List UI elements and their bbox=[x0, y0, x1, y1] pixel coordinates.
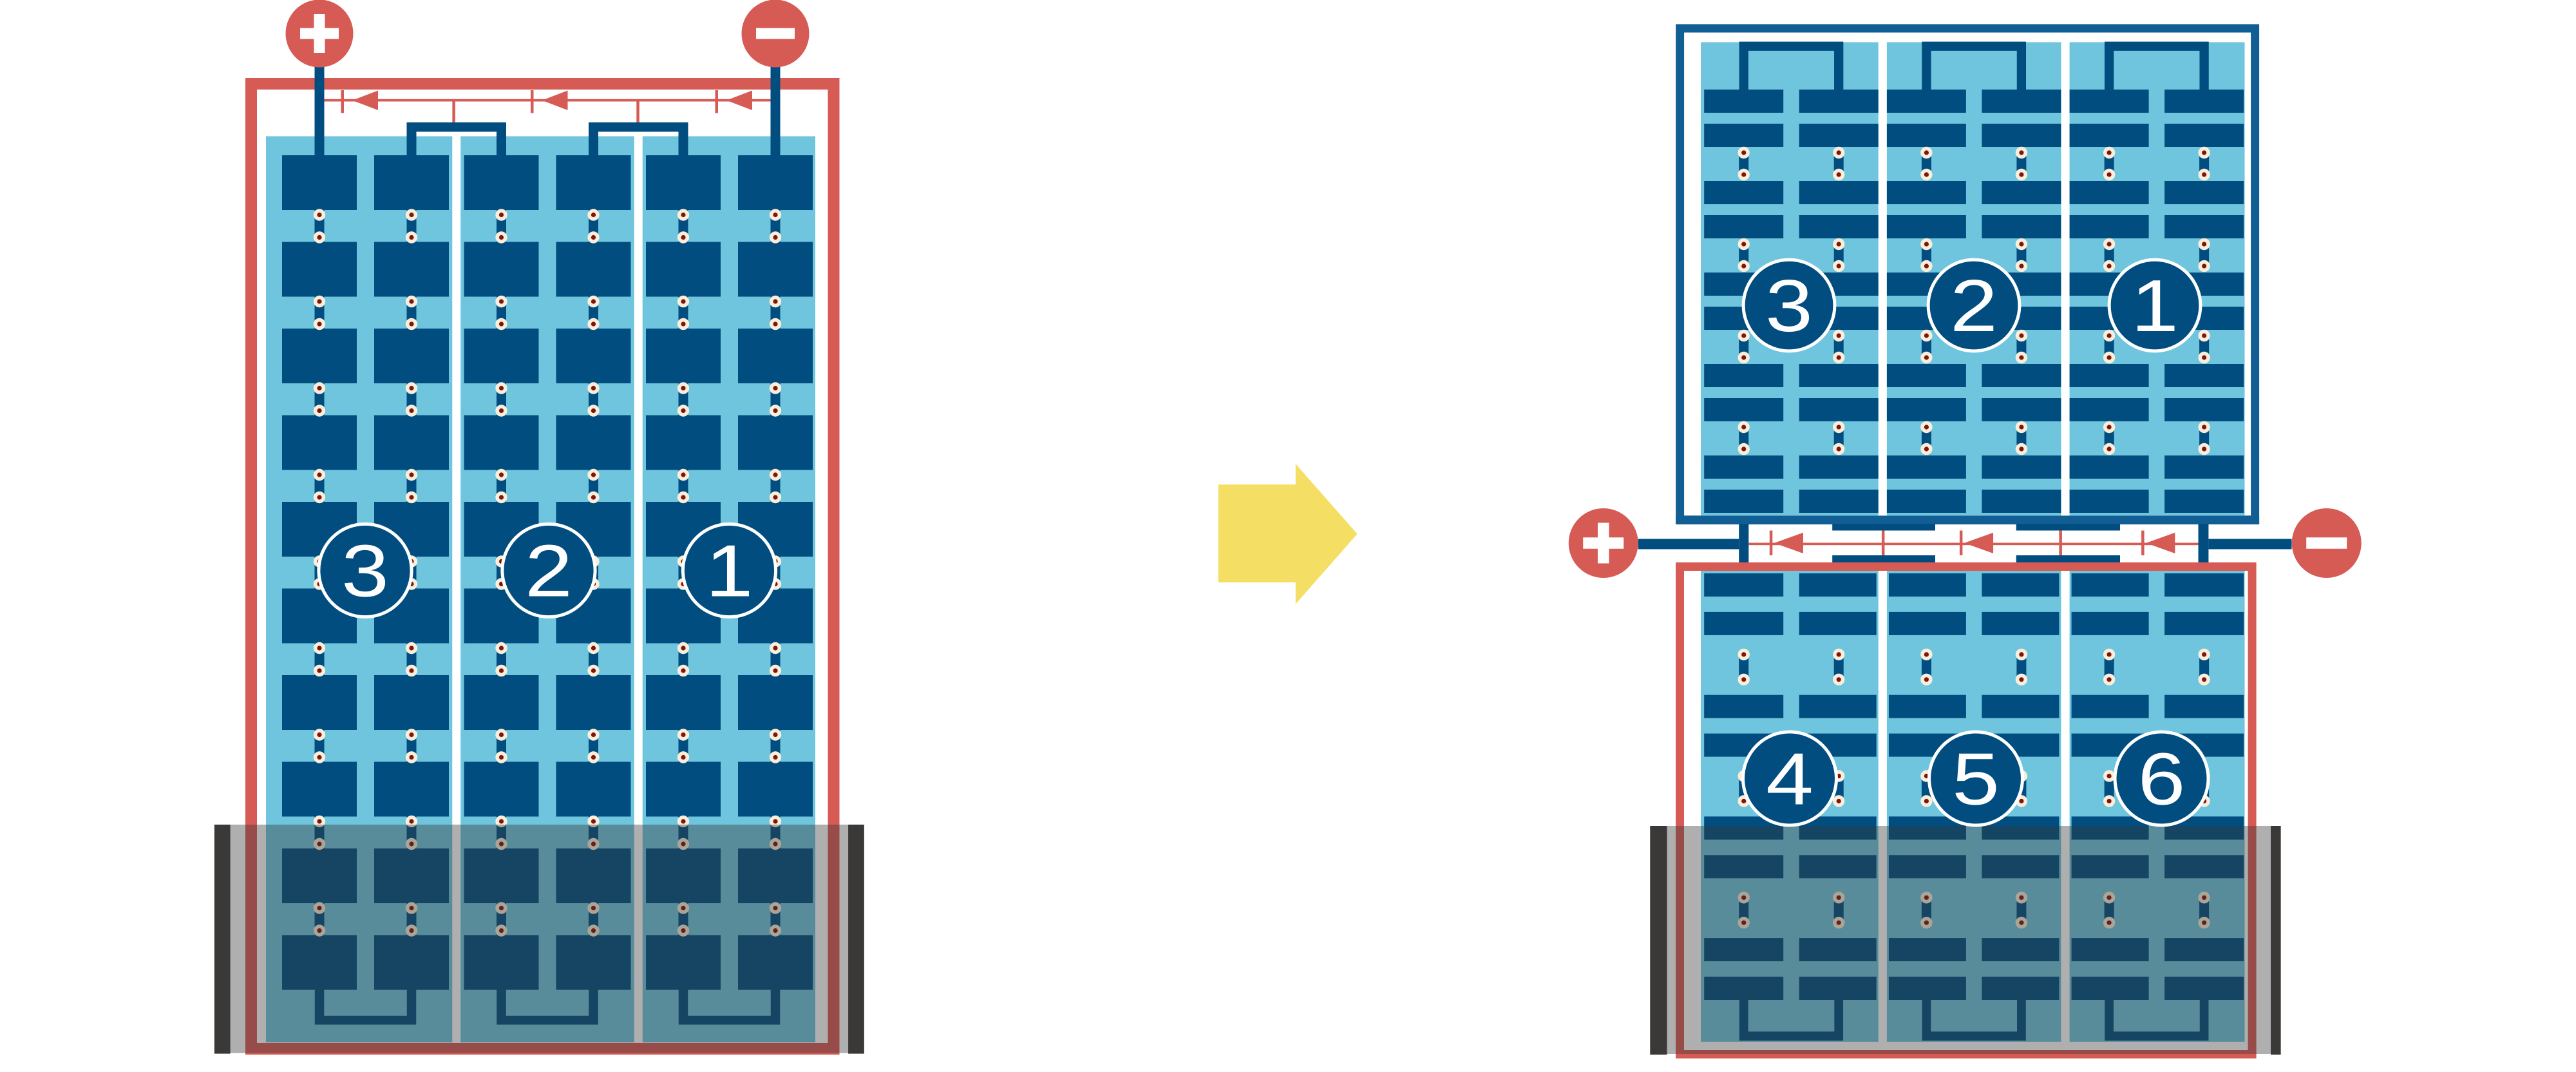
svg-text:6: 6 bbox=[2138, 738, 2186, 820]
svg-text:5: 5 bbox=[1952, 738, 2000, 820]
svg-text:2: 2 bbox=[525, 530, 573, 612]
svg-text:3: 3 bbox=[341, 530, 389, 612]
svg-text:4: 4 bbox=[1766, 738, 1814, 820]
svg-text:3: 3 bbox=[1765, 265, 1813, 347]
svg-text:1: 1 bbox=[2131, 265, 2179, 347]
svg-text:2: 2 bbox=[1950, 265, 1998, 347]
svg-text:1: 1 bbox=[706, 530, 753, 612]
